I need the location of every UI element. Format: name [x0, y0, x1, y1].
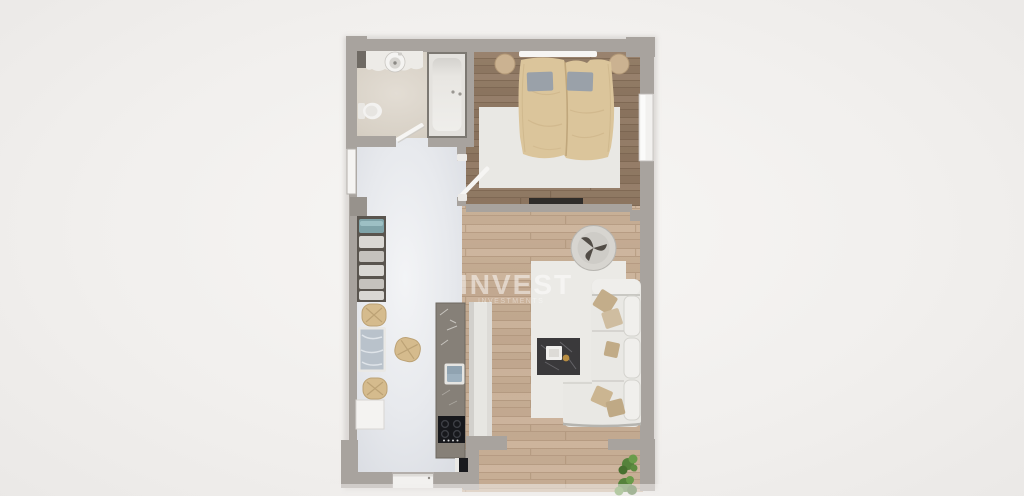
svg-text:INVESTMENTS: INVESTMENTS — [478, 298, 544, 305]
svg-text:INVEST: INVEST — [460, 269, 573, 300]
